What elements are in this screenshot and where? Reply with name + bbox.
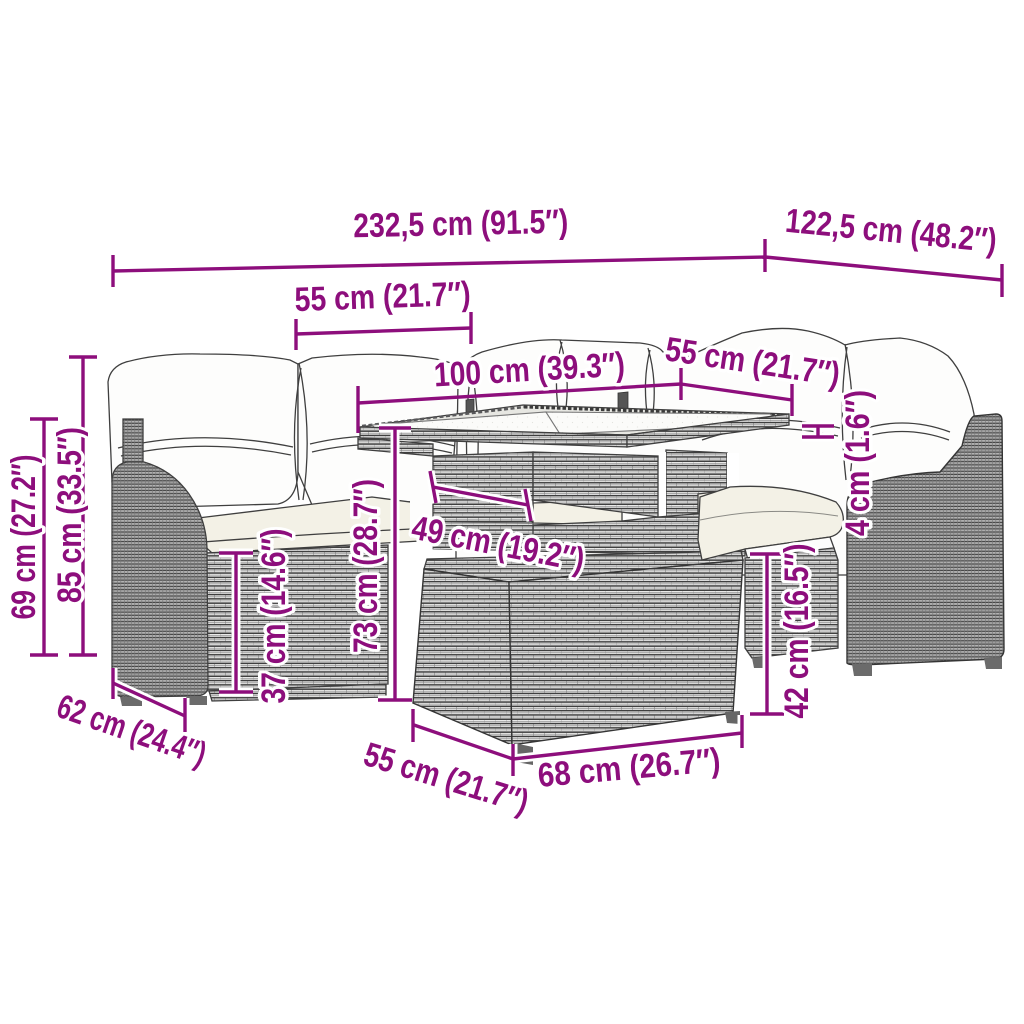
svg-text:55 cm (21.7″): 55 cm (21.7″) [294, 275, 471, 319]
svg-text:4 cm (1.6″): 4 cm (1.6″) [839, 390, 877, 536]
svg-text:69 cm (27.2″): 69 cm (27.2″) [5, 455, 43, 620]
svg-text:42 cm (16.5″): 42 cm (16.5″) [778, 544, 816, 719]
svg-text:85 cm (33.5″): 85 cm (33.5″) [51, 427, 89, 603]
svg-text:37 cm (14.6″): 37 cm (14.6″) [255, 529, 293, 704]
svg-text:73 cm (28.7″): 73 cm (28.7″) [347, 479, 385, 653]
svg-text:232,5 cm (91.5″): 232,5 cm (91.5″) [353, 203, 569, 245]
